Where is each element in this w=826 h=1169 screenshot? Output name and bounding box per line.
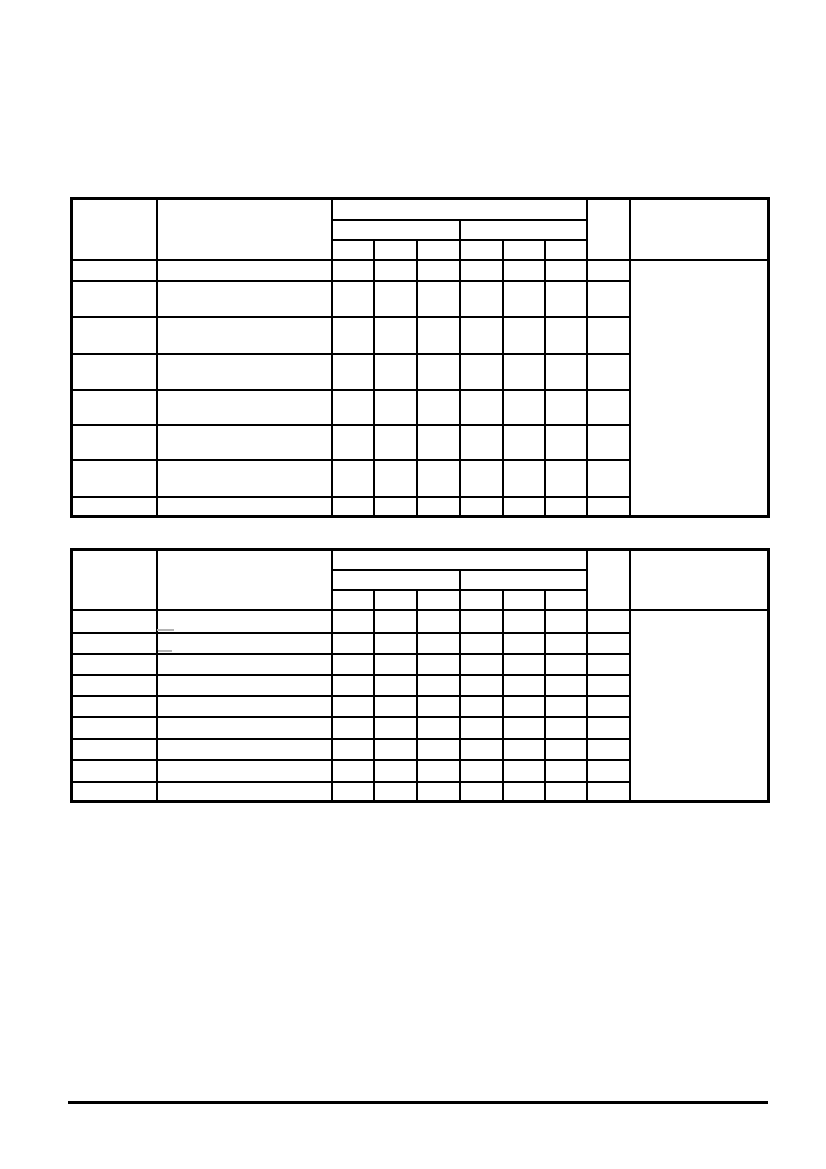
header-cell-right-column <box>630 199 769 260</box>
body-cell-subcolumn <box>374 460 417 497</box>
body-cell-narrow-column <box>587 782 630 802</box>
body-cell-subcolumn <box>503 717 546 739</box>
body-cell-narrow-column <box>587 354 630 390</box>
body-cell-narrow-column <box>587 633 630 654</box>
body-cell-left-column <box>72 739 157 760</box>
body-cell-subcolumn <box>417 717 460 739</box>
body-cell-subcolumn <box>332 317 375 354</box>
body-cell-narrow-column <box>587 760 630 782</box>
body-cell-subcolumn <box>460 460 503 497</box>
body-cell-subcolumn <box>545 610 587 633</box>
document-page <box>0 0 826 1169</box>
body-cell-subcolumn <box>460 717 503 739</box>
body-cell-subcolumn <box>503 390 546 425</box>
body-cell-description-column <box>157 317 332 354</box>
header-cell-subcolumn <box>545 590 587 610</box>
body-cell-subcolumn <box>545 260 587 281</box>
body-cell-subcolumn <box>545 460 587 497</box>
body-cell-subcolumn <box>332 717 375 739</box>
body-cell-narrow-column <box>587 675 630 696</box>
body-cell-narrow-column <box>587 654 630 675</box>
body-cell-subcolumn <box>332 739 375 760</box>
body-cell-subcolumn <box>374 317 417 354</box>
body-cell-subcolumn <box>417 425 460 460</box>
body-cell-subcolumn <box>374 782 417 802</box>
body-cell-left-column <box>72 654 157 675</box>
header-cell-group-span <box>332 199 587 220</box>
header-cell-description-column <box>157 550 332 610</box>
body-cell-subcolumn <box>545 654 587 675</box>
body-cell-subcolumn <box>374 610 417 633</box>
body-cell-subcolumn <box>545 633 587 654</box>
body-cell-subcolumn <box>374 654 417 675</box>
body-cell-left-column <box>72 281 157 317</box>
body-cell-subcolumn <box>332 782 375 802</box>
body-cell-subcolumn <box>545 696 587 717</box>
body-cell-left-column <box>72 260 157 281</box>
body-cell-description-column <box>157 260 332 281</box>
body-cell-description-column <box>157 497 332 517</box>
body-cell-subcolumn <box>374 354 417 390</box>
body-cell-description-column <box>157 633 332 654</box>
body-cell-subcolumn <box>332 610 375 633</box>
body-cell-subcolumn <box>503 654 546 675</box>
body-cell-left-column <box>72 675 157 696</box>
body-cell-subcolumn <box>460 497 503 517</box>
body-cell-subcolumn <box>417 317 460 354</box>
header-cell-subcolumn <box>545 240 587 260</box>
body-cell-subcolumn <box>417 782 460 802</box>
body-cell-narrow-column <box>587 260 630 281</box>
body-cell-subcolumn <box>460 425 503 460</box>
body-cell-subcolumn <box>417 260 460 281</box>
header-cell-subcolumn <box>374 240 417 260</box>
body-cell-narrow-column <box>587 317 630 354</box>
body-cell-left-column <box>72 610 157 633</box>
body-cell-narrow-column <box>587 717 630 739</box>
header-cell-subgroup-left <box>332 570 460 590</box>
body-cell-subcolumn <box>374 760 417 782</box>
header-cell-subcolumn <box>460 240 503 260</box>
body-cell-subcolumn <box>503 260 546 281</box>
body-cell-description-column <box>157 390 332 425</box>
body-cell-subcolumn <box>417 760 460 782</box>
header-cell-subgroup-right <box>460 570 587 590</box>
body-cell-subcolumn <box>460 633 503 654</box>
header-cell-subcolumn <box>332 590 375 610</box>
footer-rule <box>68 1101 768 1104</box>
header-cell-subcolumn <box>503 240 546 260</box>
body-cell-subcolumn <box>545 760 587 782</box>
body-cell-description-column <box>157 696 332 717</box>
body-cell-subcolumn <box>545 281 587 317</box>
table-row <box>72 260 769 281</box>
body-cell-narrow-column <box>587 281 630 317</box>
body-cell-subcolumn <box>545 717 587 739</box>
body-cell-subcolumn <box>374 390 417 425</box>
body-cell-subcolumn <box>332 260 375 281</box>
body-cell-subcolumn <box>417 390 460 425</box>
header-cell-left-column <box>72 199 157 260</box>
body-cell-left-column <box>72 460 157 497</box>
body-cell-subcolumn <box>374 497 417 517</box>
body-cell-subcolumn <box>332 281 375 317</box>
body-cell-subcolumn <box>417 460 460 497</box>
body-cell-subcolumn <box>460 610 503 633</box>
body-cell-description-column <box>157 425 332 460</box>
body-cell-description-column <box>157 354 332 390</box>
body-cell-narrow-column <box>587 739 630 760</box>
body-cell-subcolumn <box>503 281 546 317</box>
body-cell-subcolumn <box>460 390 503 425</box>
body-cell-subcolumn <box>545 782 587 802</box>
body-cell-subcolumn <box>332 633 375 654</box>
body-cell-subcolumn <box>460 696 503 717</box>
body-cell-subcolumn <box>503 425 546 460</box>
body-cell-left-column <box>72 782 157 802</box>
body-cell-left-column <box>72 425 157 460</box>
header-cell-subcolumn <box>417 590 460 610</box>
faint-artifact-dash <box>158 650 172 652</box>
body-cell-subcolumn <box>374 675 417 696</box>
body-cell-description-column <box>157 610 332 633</box>
body-cell-subcolumn <box>374 739 417 760</box>
body-cell-left-column <box>72 317 157 354</box>
body-cell-subcolumn <box>417 696 460 717</box>
body-cell-description-column <box>157 739 332 760</box>
body-cell-subcolumn <box>417 281 460 317</box>
body-cell-subcolumn <box>460 760 503 782</box>
body-cell-subcolumn <box>545 317 587 354</box>
header-cell-narrow-column <box>587 550 630 610</box>
lower-table <box>70 548 770 803</box>
body-cell-subcolumn <box>374 633 417 654</box>
header-cell-right-column <box>630 550 769 610</box>
body-cell-subcolumn <box>374 696 417 717</box>
header-cell-narrow-column <box>587 199 630 260</box>
body-cell-description-column <box>157 782 332 802</box>
header-cell-description-column <box>157 199 332 260</box>
header-cell-left-column <box>72 550 157 610</box>
body-cell-subcolumn <box>417 654 460 675</box>
body-cell-left-column <box>72 760 157 782</box>
body-cell-left-column <box>72 696 157 717</box>
body-cell-subcolumn <box>460 654 503 675</box>
body-cell-subcolumn <box>503 675 546 696</box>
body-cell-subcolumn <box>417 675 460 696</box>
body-cell-subcolumn <box>417 354 460 390</box>
body-cell-subcolumn <box>417 739 460 760</box>
body-cell-subcolumn <box>503 696 546 717</box>
body-cell-description-column <box>157 760 332 782</box>
body-cell-narrow-column <box>587 390 630 425</box>
body-cell-left-column <box>72 717 157 739</box>
body-cell-subcolumn <box>545 354 587 390</box>
body-cell-subcolumn <box>503 739 546 760</box>
body-cell-subcolumn <box>503 460 546 497</box>
body-cell-subcolumn <box>374 281 417 317</box>
body-cell-subcolumn <box>545 425 587 460</box>
body-cell-subcolumn <box>332 354 375 390</box>
header-cell-subcolumn <box>332 240 375 260</box>
body-cell-left-column <box>72 354 157 390</box>
body-cell-subcolumn <box>545 739 587 760</box>
table-row <box>72 610 769 633</box>
body-cell-left-column <box>72 390 157 425</box>
body-cell-subcolumn <box>545 390 587 425</box>
body-cell-subcolumn <box>460 281 503 317</box>
upper-table <box>70 197 770 518</box>
body-cell-subcolumn <box>503 633 546 654</box>
body-cell-subcolumn <box>417 497 460 517</box>
body-cell-subcolumn <box>417 633 460 654</box>
header-cell-group-span <box>332 550 587 570</box>
body-cell-subcolumn <box>374 260 417 281</box>
body-cell-subcolumn <box>460 782 503 802</box>
body-cell-subcolumn <box>460 354 503 390</box>
body-cell-subcolumn <box>374 717 417 739</box>
body-cell-description-column <box>157 281 332 317</box>
header-cell-subgroup-left <box>332 220 460 240</box>
header-cell-subcolumn <box>503 590 546 610</box>
body-cell-subcolumn <box>332 425 375 460</box>
body-cell-subcolumn <box>374 425 417 460</box>
body-cell-subcolumn <box>332 390 375 425</box>
body-cell-subcolumn <box>332 675 375 696</box>
body-cell-narrow-column <box>587 425 630 460</box>
body-cell-narrow-column <box>587 610 630 633</box>
body-cell-description-column <box>157 675 332 696</box>
body-cell-subcolumn <box>545 675 587 696</box>
body-cell-narrow-column <box>587 460 630 497</box>
header-cell-subcolumn <box>417 240 460 260</box>
body-cell-subcolumn <box>503 497 546 517</box>
body-cell-left-column <box>72 497 157 517</box>
body-cell-narrow-column <box>587 696 630 717</box>
body-cell-subcolumn <box>503 610 546 633</box>
body-cell-subcolumn <box>503 760 546 782</box>
header-cell-subcolumn <box>374 590 417 610</box>
body-cell-subcolumn <box>417 610 460 633</box>
body-cell-subcolumn <box>545 497 587 517</box>
body-cell-subcolumn <box>460 675 503 696</box>
header-cell-subgroup-right <box>460 220 587 240</box>
body-cell-right-merged <box>630 260 769 517</box>
body-cell-left-column <box>72 633 157 654</box>
body-cell-description-column <box>157 717 332 739</box>
body-cell-subcolumn <box>503 354 546 390</box>
header-cell-subcolumn <box>460 590 503 610</box>
body-cell-subcolumn <box>503 317 546 354</box>
body-cell-subcolumn <box>332 696 375 717</box>
body-cell-subcolumn <box>332 460 375 497</box>
body-cell-subcolumn <box>332 497 375 517</box>
body-cell-subcolumn <box>460 317 503 354</box>
body-cell-subcolumn <box>332 760 375 782</box>
body-cell-subcolumn <box>460 739 503 760</box>
faint-artifact-dash <box>157 629 174 631</box>
body-cell-narrow-column <box>587 497 630 517</box>
body-cell-right-merged <box>630 610 769 802</box>
body-cell-subcolumn <box>460 260 503 281</box>
body-cell-description-column <box>157 654 332 675</box>
body-cell-subcolumn <box>332 654 375 675</box>
body-cell-description-column <box>157 460 332 497</box>
body-cell-subcolumn <box>503 782 546 802</box>
